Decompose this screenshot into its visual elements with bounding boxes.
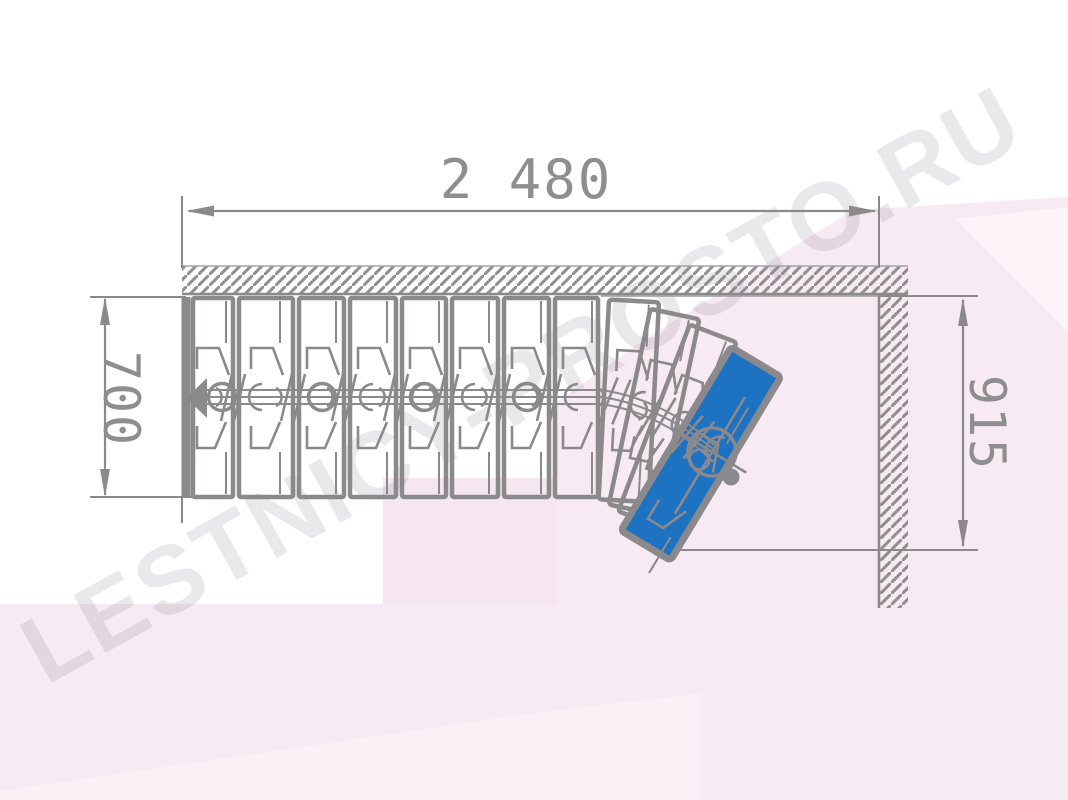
plan-canvas: LESTNICY-PROSTO.RU 2 480 700 915 — [0, 0, 1068, 800]
dim-label-exit-opening: 915 — [958, 375, 1016, 471]
dim-label-flight-width: 700 — [92, 351, 150, 447]
staircase-plan-drawing: LESTNICY-PROSTO.RU 2 480 700 915 — [0, 0, 1068, 800]
right-wall — [879, 294, 908, 608]
top-wall — [182, 266, 908, 294]
dim-label-total-run: 2 480 — [440, 148, 613, 211]
pivot-dot — [723, 469, 740, 486]
